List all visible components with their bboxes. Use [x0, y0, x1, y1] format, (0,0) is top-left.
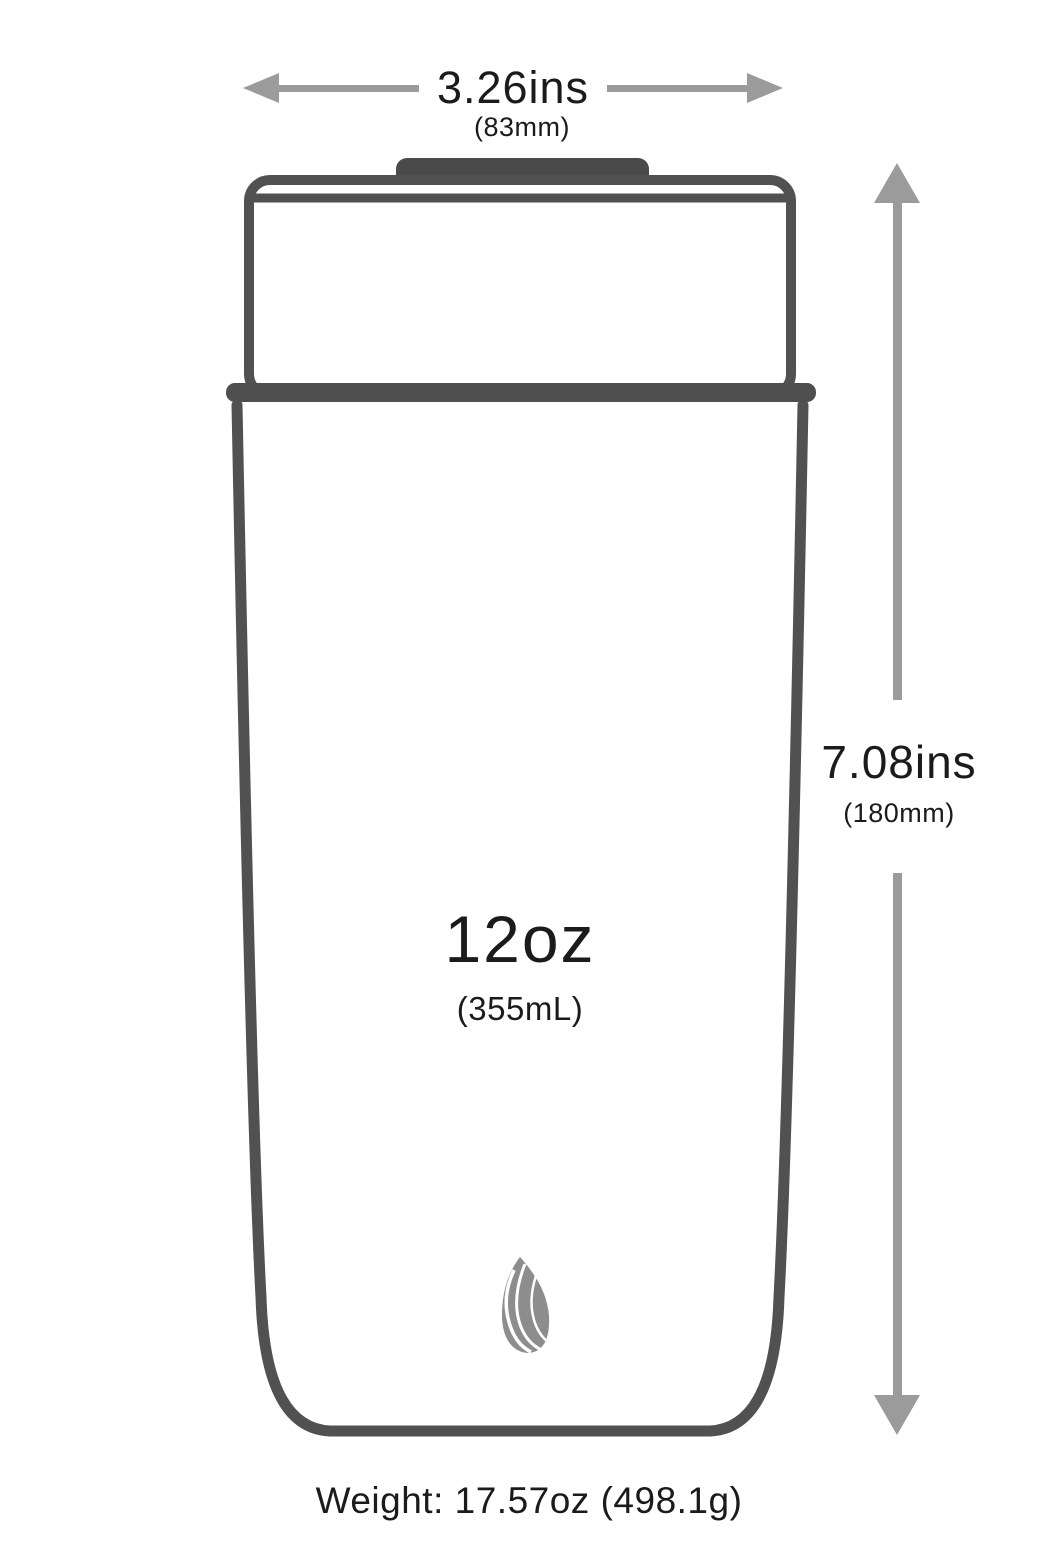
cup-rim-band: [226, 383, 816, 402]
width-dimension-line-right: [607, 85, 747, 92]
height-metric: (180mm): [800, 798, 998, 829]
arrow-right-icon: [747, 73, 783, 103]
height-dimension-line-lower: [893, 873, 902, 1395]
arrow-up-icon: [874, 163, 920, 203]
capacity-metric: (355mL): [270, 990, 770, 1028]
width-value: 3.26ins: [419, 62, 607, 114]
height-value: 7.08ins: [800, 737, 998, 788]
height-dimension-line-upper: [893, 203, 902, 700]
tumbler-dimension-diagram: 3.26ins (83mm) 7.08ins (180mm) 12oz (355…: [0, 0, 1058, 1547]
width-dimension: 3.26ins: [243, 60, 783, 116]
height-labels: 7.08ins (180mm): [800, 737, 998, 829]
width-metric: (83mm): [242, 112, 802, 143]
height-dimension-lower: [874, 873, 920, 1435]
arrow-down-icon: [874, 1395, 920, 1435]
capacity-value: 12oz: [270, 906, 770, 972]
capacity-labels: 12oz (355mL): [270, 906, 770, 1028]
arrow-left-icon: [243, 73, 279, 103]
width-dimension-line-left: [279, 85, 419, 92]
lid: [249, 180, 791, 395]
weight-label: Weight: 17.57oz (498.1g): [0, 1480, 1058, 1522]
height-dimension-upper: [874, 163, 920, 700]
